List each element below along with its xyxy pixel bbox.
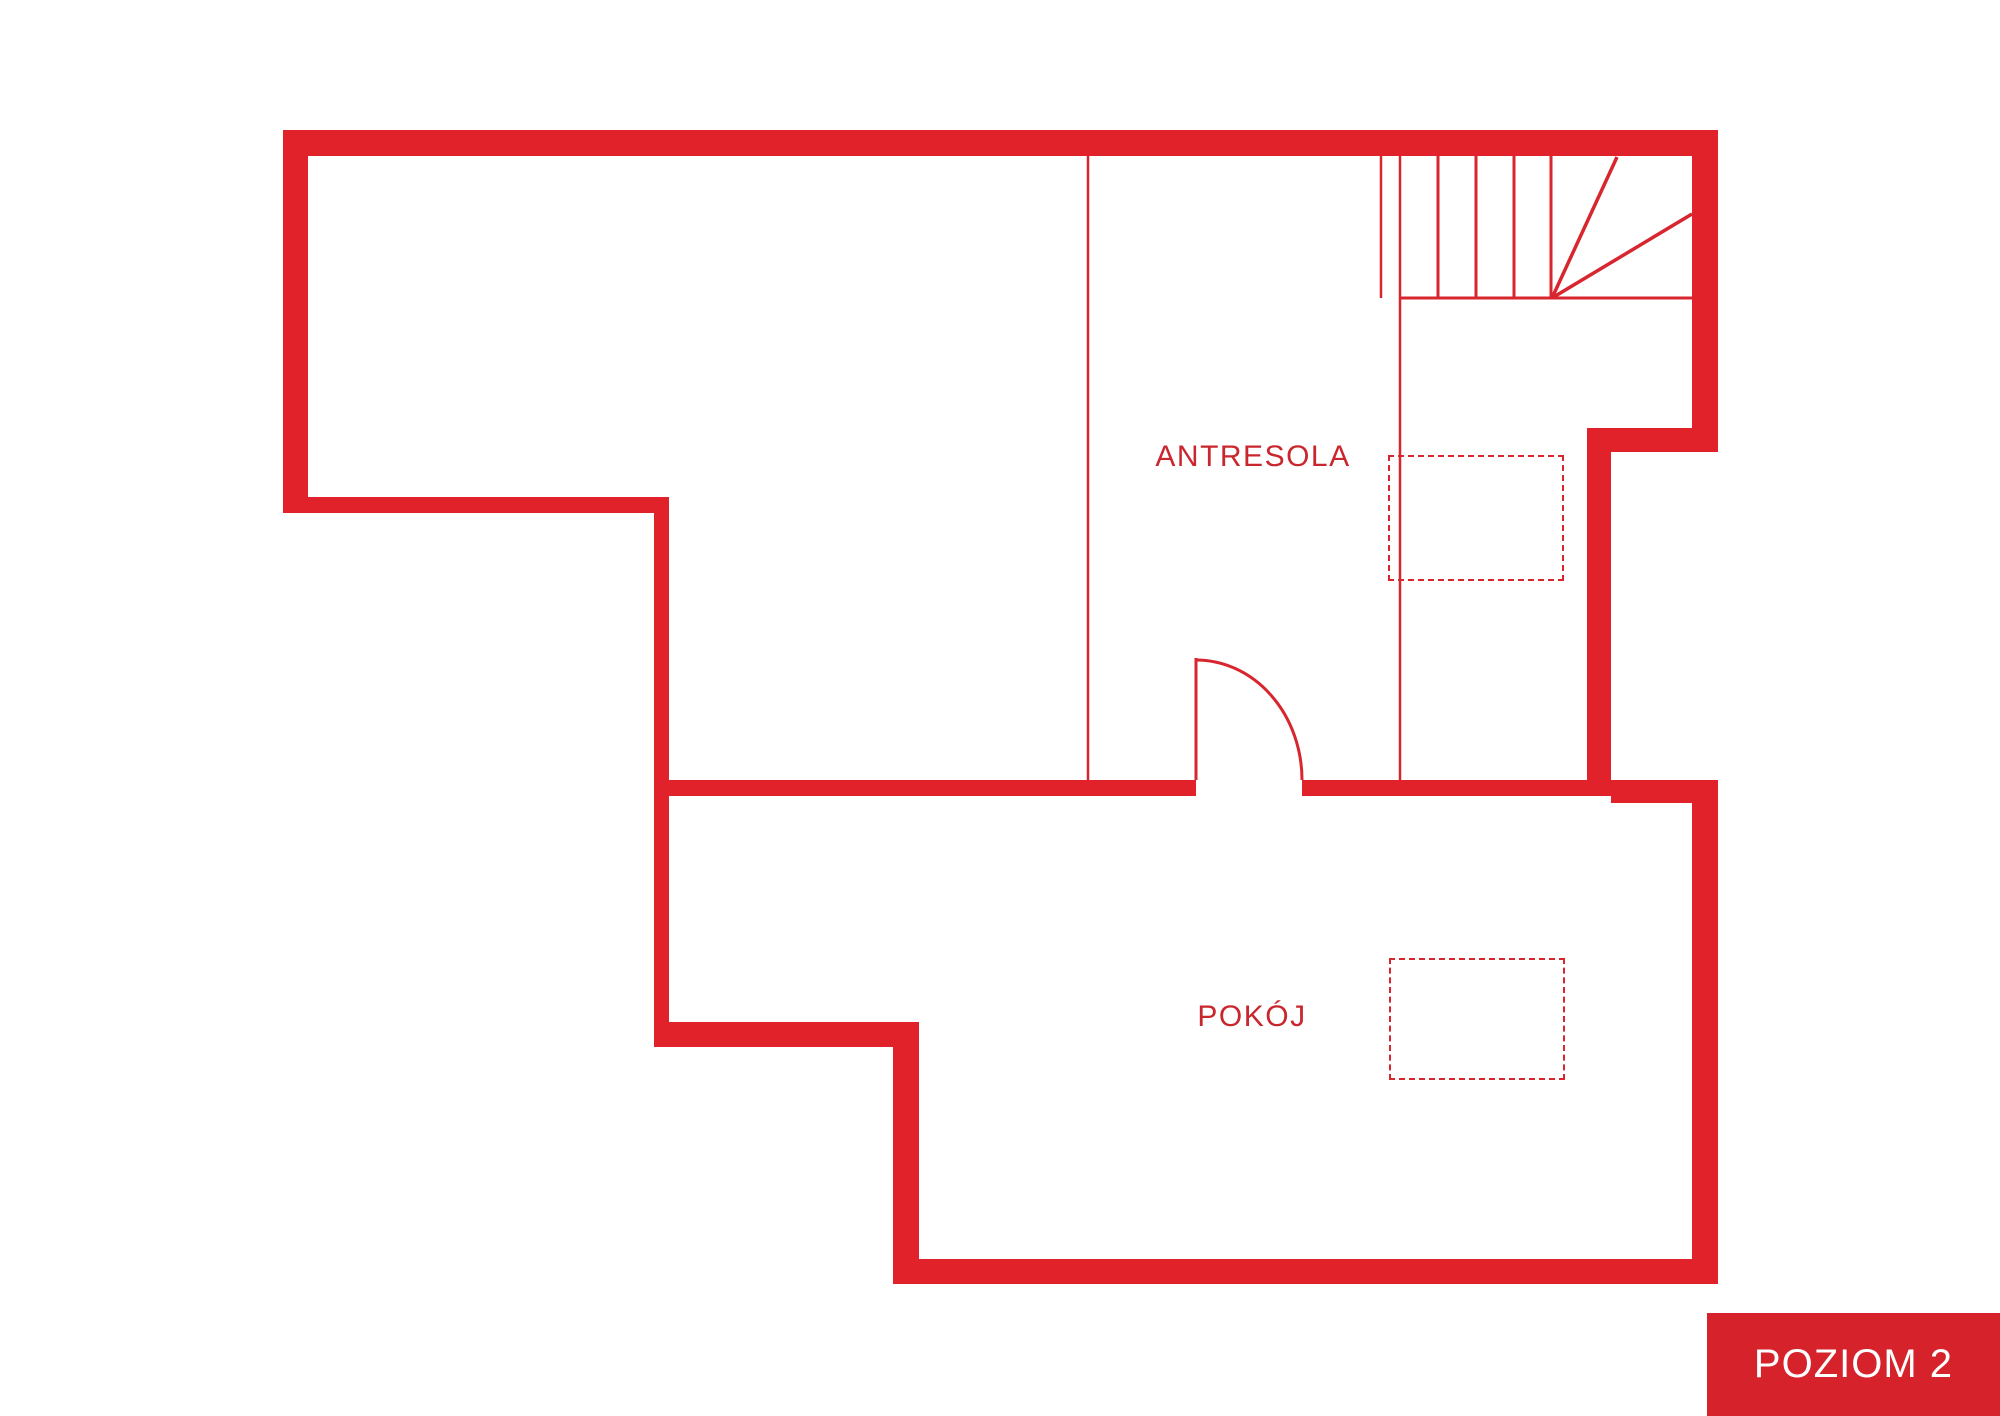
dashed-outline-pokoj — [1389, 958, 1565, 1080]
level-badge: POZIOM 2 — [1707, 1313, 2000, 1416]
dashed-outline-antresola — [1388, 455, 1564, 581]
stairs — [1381, 156, 1692, 298]
door — [1196, 658, 1302, 780]
room-label-antresola: ANTRESOLA — [1103, 440, 1403, 474]
floor-plan-canvas: ANTRESOLA POKÓJ POZIOM 2 — [0, 0, 2000, 1416]
thin-lines-overlay — [0, 0, 2000, 1416]
door-swing-arc — [1196, 660, 1302, 780]
room-label-pokoj: POKÓJ — [1102, 1000, 1402, 1034]
level-badge-text: POZIOM 2 — [1754, 1342, 1953, 1387]
